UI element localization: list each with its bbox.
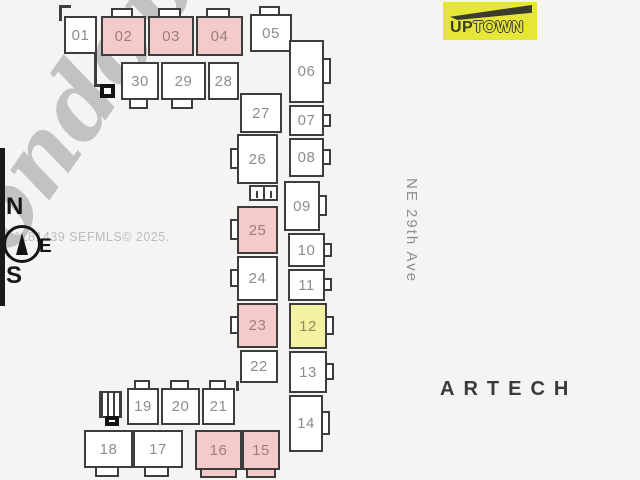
unit-29: 29 — [161, 62, 206, 100]
unit-14: 14 — [289, 395, 323, 452]
elevator-icon — [249, 185, 276, 201]
unit-02: 02 — [101, 16, 146, 56]
uptown-logo: UPTOWN — [443, 2, 537, 40]
unit-23: 23 — [237, 303, 278, 348]
unit-28: 28 — [208, 62, 239, 100]
compass-north-label: N — [6, 193, 23, 221]
unit-13: 13 — [289, 351, 327, 393]
wall-segment — [59, 5, 71, 8]
unit-16: 16 — [195, 430, 242, 470]
unit-20: 20 — [161, 388, 200, 425]
arrow-up-icon — [16, 233, 28, 255]
unit-21: 21 — [202, 388, 235, 425]
wall-segment — [94, 52, 97, 87]
logo-text: UPTOWN — [450, 20, 524, 36]
unit-01: 01 — [64, 16, 97, 54]
left-edge-mark — [0, 148, 5, 306]
elevator-cell — [263, 185, 279, 201]
unit-07: 07 — [289, 105, 324, 136]
logo-text-secondary: TOWN — [473, 19, 524, 36]
unit-15: 15 — [242, 430, 280, 470]
unit-30: 30 — [121, 62, 159, 100]
unit-05: 05 — [250, 14, 292, 52]
unit-26: 26 — [237, 134, 278, 184]
street-label: NE 29th Ave — [403, 178, 420, 283]
wall-segment — [236, 381, 239, 391]
unit-27: 27 — [240, 93, 282, 133]
unit-17: 17 — [133, 430, 183, 468]
unit-03: 03 — [148, 16, 194, 56]
unit-10: 10 — [288, 233, 325, 267]
north-arrow-icon — [3, 225, 41, 263]
unit-25: 25 — [237, 206, 278, 254]
unit-24: 24 — [237, 256, 278, 301]
unit-08: 08 — [289, 138, 324, 177]
swoosh-icon — [450, 5, 532, 20]
unit-06: 06 — [289, 40, 324, 103]
unit-19: 19 — [127, 388, 159, 425]
compass-east-label: E — [39, 236, 52, 258]
floorplan-image: condoplan 010203040530292827262524232206… — [0, 0, 640, 480]
shaft-marker — [100, 84, 115, 98]
unit-12: 12 — [289, 303, 327, 349]
stairs-icon — [99, 391, 122, 418]
unit-18: 18 — [84, 430, 133, 468]
unit-09: 09 — [284, 181, 320, 231]
logo-text-primary: UP — [450, 19, 473, 36]
unit-22: 22 — [240, 350, 278, 383]
building-name-label: ARTECH — [440, 378, 577, 401]
shaft-marker — [105, 416, 119, 426]
unit-04: 04 — [196, 16, 243, 56]
unit-11: 11 — [288, 269, 325, 301]
compass-south-label: S — [6, 262, 22, 290]
